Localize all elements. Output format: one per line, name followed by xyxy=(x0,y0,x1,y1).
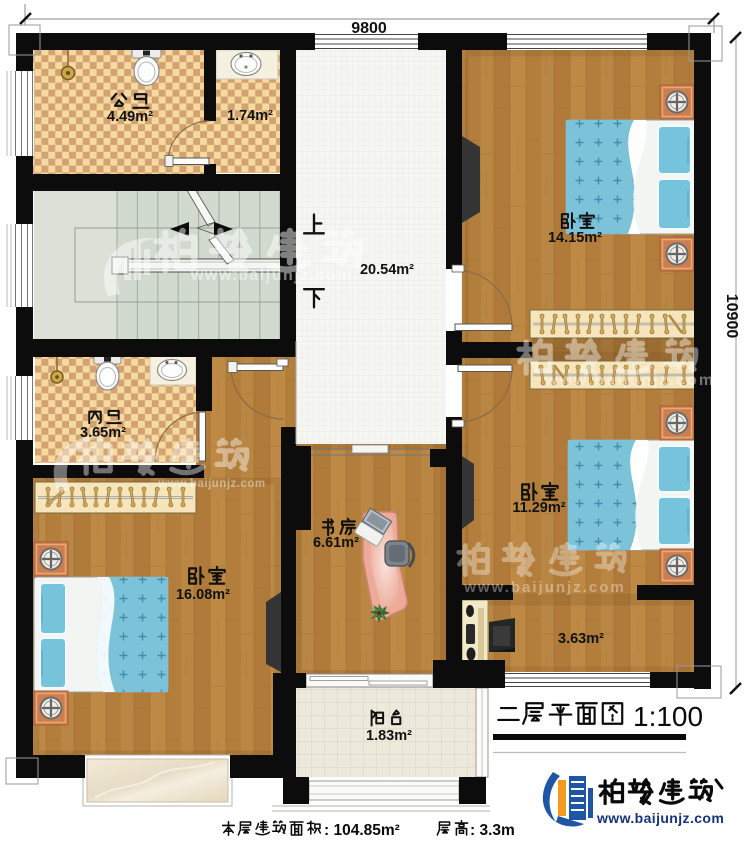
svg-text:10900: 10900 xyxy=(723,294,740,339)
svg-text:20.54m²: 20.54m² xyxy=(360,262,414,278)
svg-text:3.63m²: 3.63m² xyxy=(558,631,604,647)
svg-text:11.29m²: 11.29m² xyxy=(512,500,565,516)
svg-text:www.baijunjz.com: www.baijunjz.com xyxy=(463,579,625,596)
svg-text:1.74m²: 1.74m² xyxy=(227,108,273,124)
svg-text:1.83m²: 1.83m² xyxy=(366,728,412,744)
svg-text:www.baijunjz.com: www.baijunjz.com xyxy=(544,372,715,389)
svg-text:www.baijunjz.com: www.baijunjz.com xyxy=(190,267,353,284)
svg-text:9800: 9800 xyxy=(351,20,387,37)
svg-text:6.61m²: 6.61m² xyxy=(313,535,359,551)
svg-text:www.baijunjz.com: www.baijunjz.com xyxy=(596,810,724,826)
svg-text:: 104.85m²: : 104.85m² xyxy=(324,822,400,839)
svg-text:16.08m²: 16.08m² xyxy=(176,587,230,603)
svg-text:www.baijunjz.com: www.baijunjz.com xyxy=(157,478,265,490)
svg-text:: 3.3m: : 3.3m xyxy=(470,822,515,839)
svg-text:4.49m²: 4.49m² xyxy=(107,109,153,125)
svg-text:14.15m²: 14.15m² xyxy=(548,230,602,246)
svg-text:1:100: 1:100 xyxy=(633,701,703,732)
